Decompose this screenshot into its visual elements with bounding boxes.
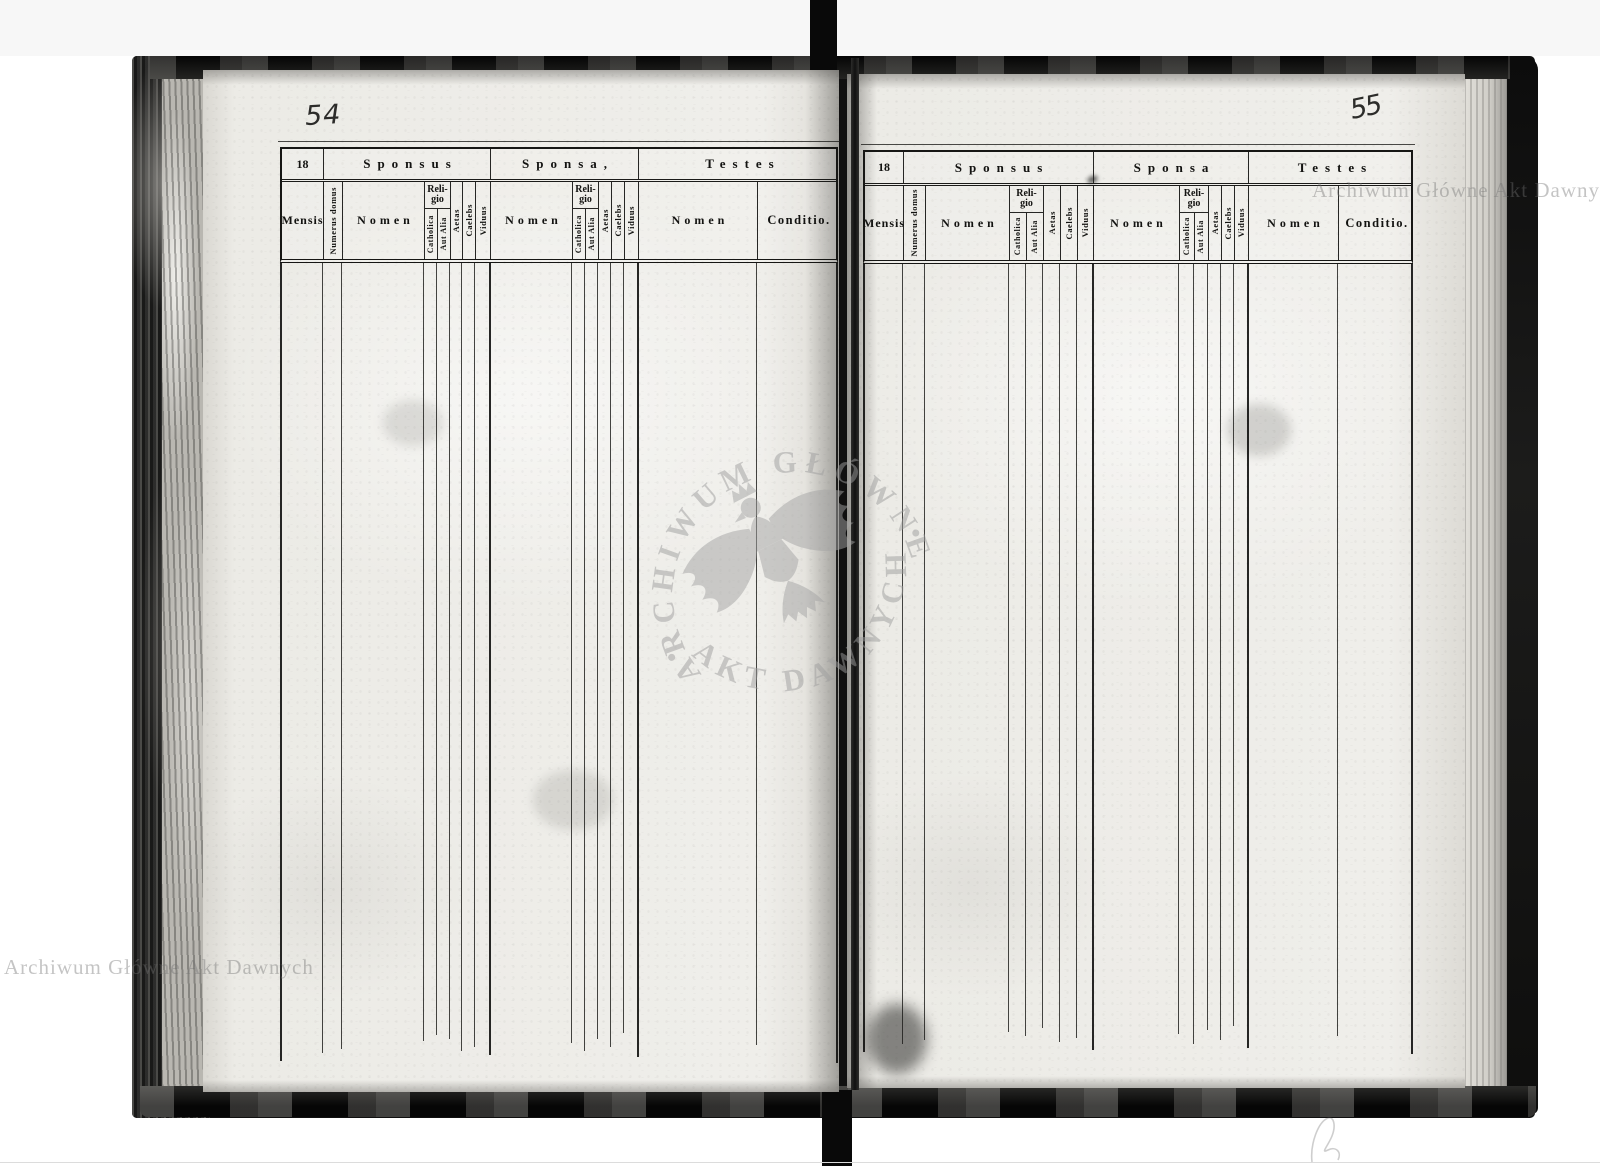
folio-number-left: 54 [304, 99, 342, 132]
table-header: 18 Sponsus Sponsa, Testes Mensis Numerus… [280, 147, 838, 263]
col-conditio: Conditio. [1345, 216, 1408, 231]
group-header-sponsus: Sponsus [356, 156, 458, 172]
col-catholica: Catholica [427, 215, 435, 253]
col-sponsus-nomen: Nomen [353, 213, 414, 228]
col-testes-nomen: Nomen [668, 213, 729, 228]
group-header-sponsa: Sponsa [1127, 160, 1216, 176]
book-clasp-top [810, 0, 837, 74]
religio-line2: gio [1188, 199, 1201, 209]
col-mensis: Mensis [863, 216, 905, 231]
col-catholica: Catholica [575, 215, 583, 253]
table-body-rules [863, 264, 1413, 1054]
folio-number-right: 55 [1347, 89, 1383, 126]
scanned-register-spread: 54 55 18 Sponsus Sponsa, Testes Mensis N… [0, 0, 1600, 1166]
col-aut-alia: Aut Alia [1031, 220, 1039, 253]
year-prefix: 18 [297, 157, 309, 172]
col-caelebs: Caelebs [614, 204, 623, 237]
religio-line2: gio [1020, 199, 1033, 209]
table-body-rules [280, 263, 838, 1063]
col-testes-nomen: Nomen [1263, 216, 1324, 231]
col-caelebs: Caelebs [1065, 207, 1074, 240]
religio-line2: gio [579, 195, 592, 205]
col-viduus: Viduus [1081, 208, 1090, 237]
book-gutter [851, 58, 859, 1090]
col-caelebs: Caelebs [1224, 207, 1233, 240]
year-prefix: 18 [878, 160, 890, 175]
table-outer-topline [861, 144, 1415, 145]
col-aetas: Aetas [601, 209, 610, 232]
col-catholica: Catholica [1014, 217, 1022, 255]
col-viduus: Viduus [1237, 208, 1246, 237]
page-stack-edge-right [1464, 64, 1507, 1110]
col-numerus-domus: Numerus domus [910, 189, 919, 257]
col-sponsa-nomen: Nomen [501, 213, 562, 228]
book-clasp-bottom [822, 1090, 852, 1166]
col-religio-group: Reli- gio Catholica Aut Alia [1010, 186, 1044, 260]
register-table-left: 18 Sponsus Sponsa, Testes Mensis Numerus… [280, 147, 838, 1063]
col-aut-alia: Aut Alia [1197, 220, 1205, 253]
pencil-mark [1298, 1110, 1358, 1166]
col-aut-alia: Aut Alia [588, 217, 596, 250]
col-conditio: Conditio. [767, 213, 830, 228]
col-aetas: Aetas [1211, 211, 1220, 234]
col-religio-group: Reli- gio Catholica Aut Alia [1180, 186, 1209, 260]
group-header-testes: Testes [1291, 160, 1373, 176]
table-header: 18 Sponsus Sponsa Testes Mensis Numerus … [863, 150, 1413, 264]
col-aut-alia: Aut Alia [440, 217, 448, 250]
book-cover-right-edge [1507, 56, 1538, 1114]
col-numerus-domus: Numerus domus [329, 187, 338, 255]
col-sponsus-nomen: Nomen [937, 216, 998, 231]
col-viduus: Viduus [479, 206, 488, 235]
col-aetas: Aetas [452, 209, 461, 232]
scanner-edge-line [0, 1162, 1600, 1163]
col-viduus: Viduus [627, 206, 636, 235]
group-header-sponsa: Sponsa, [515, 156, 614, 172]
col-mensis: Mensis [282, 213, 324, 228]
group-header-sponsus: Sponsus [948, 160, 1050, 176]
register-table-right: 18 Sponsus Sponsa Testes Mensis Numerus … [863, 150, 1413, 1054]
col-religio-group: Reli- gio Catholica Aut Alia [573, 182, 599, 259]
watermark-text-bottom-left: Archiwum Główne Akt Dawnych [4, 955, 314, 980]
religio-line2: gio [431, 195, 444, 205]
torn-page-edges-left [162, 68, 208, 1106]
col-sponsa-nomen: Nomen [1106, 216, 1167, 231]
col-catholica: Catholica [1183, 217, 1191, 255]
col-religio-group: Reli- gio Catholica Aut Alia [425, 182, 451, 259]
table-outer-topline [278, 141, 840, 142]
watermark-text-top-right: Archiwum Główne Akt Dawnych [1312, 178, 1600, 203]
group-header-testes: Testes [698, 156, 780, 172]
col-aetas: Aetas [1048, 211, 1057, 234]
col-caelebs: Caelebs [465, 204, 474, 237]
